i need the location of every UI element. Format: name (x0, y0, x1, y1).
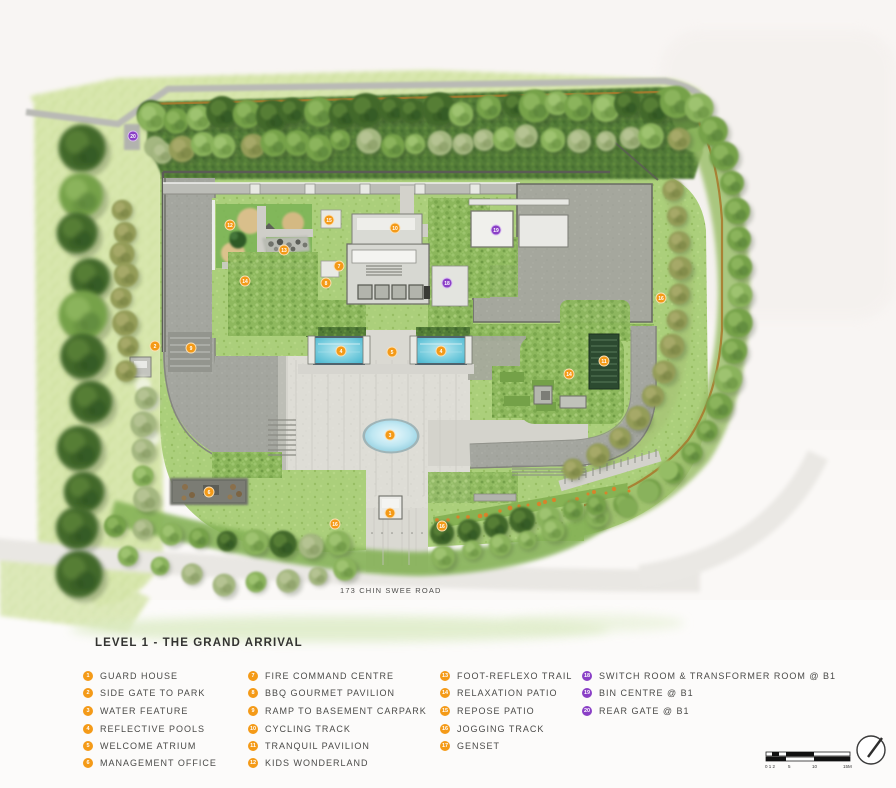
svg-text:3: 3 (389, 433, 392, 439)
svg-text:13: 13 (281, 248, 287, 254)
svg-text:8: 8 (325, 281, 328, 287)
svg-text:0 1 2: 0 1 2 (765, 764, 776, 769)
svg-text:1: 1 (389, 511, 392, 517)
svg-text:14: 14 (242, 279, 248, 285)
svg-text:5: 5 (391, 350, 394, 356)
svg-text:2: 2 (154, 344, 157, 350)
svg-text:20: 20 (130, 134, 136, 140)
svg-text:16: 16 (332, 522, 338, 528)
svg-text:11: 11 (601, 359, 607, 365)
svg-text:4: 4 (440, 349, 443, 355)
svg-text:16: 16 (439, 524, 445, 530)
svg-text:12: 12 (227, 223, 233, 229)
svg-text:7: 7 (338, 264, 341, 270)
svg-text:19: 19 (493, 228, 499, 234)
svg-text:14: 14 (566, 372, 572, 378)
svg-text:10: 10 (392, 226, 398, 232)
svg-text:10: 10 (812, 764, 818, 769)
svg-text:15M: 15M (843, 764, 852, 769)
svg-text:6: 6 (208, 490, 211, 496)
svg-text:4: 4 (340, 349, 343, 355)
svg-text:16: 16 (658, 296, 664, 302)
svg-text:18: 18 (444, 281, 450, 287)
svg-text:15: 15 (326, 218, 332, 224)
svg-text:9: 9 (190, 346, 193, 352)
